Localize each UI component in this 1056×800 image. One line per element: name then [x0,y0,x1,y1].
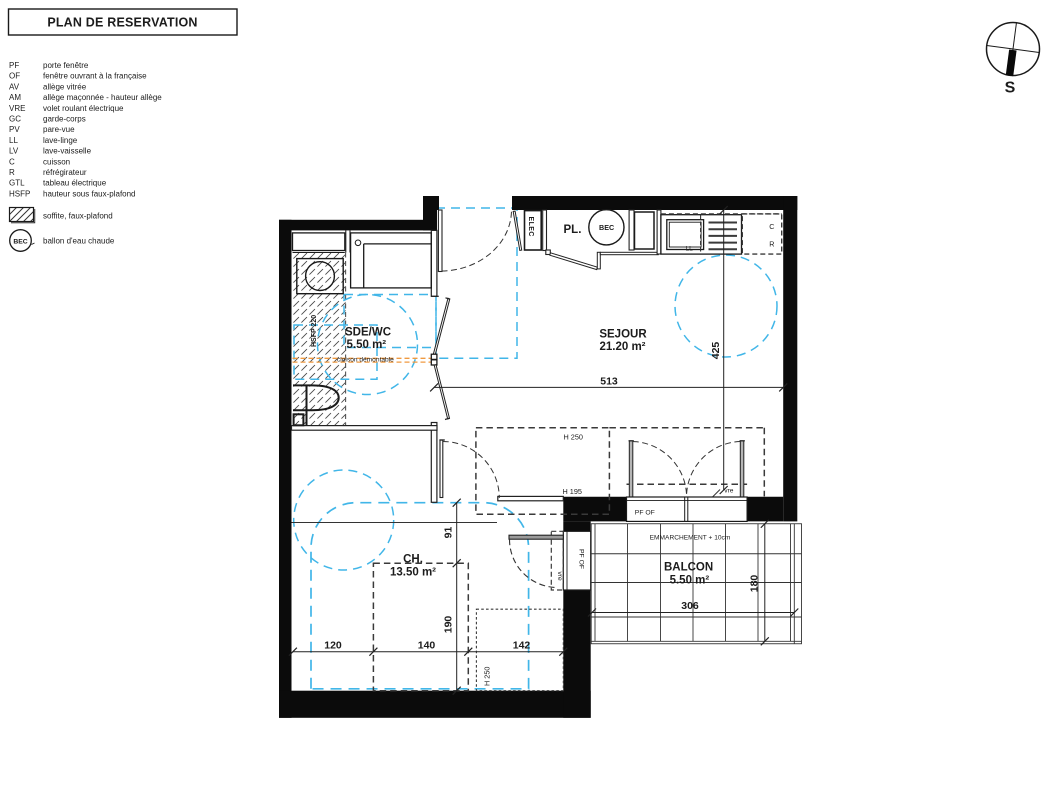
svg-text:21.20 m²: 21.20 m² [599,341,645,353]
svg-text:PF: PF [9,61,19,70]
svg-text:SEJOUR: SEJOUR [599,329,647,341]
svg-text:91: 91 [443,527,455,539]
svg-text:garde-corps: garde-corps [43,115,86,124]
svg-text:PLAN DE RESERVATION: PLAN DE RESERVATION [47,16,197,30]
svg-text:cuisson: cuisson [43,157,70,166]
svg-text:BEC: BEC [599,223,614,232]
svg-text:13.50 m²: 13.50 m² [390,566,436,578]
svg-text:AV: AV [9,82,20,91]
svg-text:soffite, faux-plafond: soffite, faux-plafond [43,212,113,221]
svg-text:LL: LL [9,136,18,145]
svg-text:hauteur sous faux-plafond: hauteur sous faux-plafond [43,189,136,198]
svg-text:BEC: BEC [13,239,27,246]
svg-text:180: 180 [749,575,761,593]
svg-text:allège maçonnée - hauteur allè: allège maçonnée - hauteur allège [43,93,162,102]
svg-text:lave-linge: lave-linge [43,136,78,145]
svg-text:GC: GC [9,115,21,124]
svg-text:425: 425 [710,342,722,360]
svg-text:190: 190 [443,616,455,634]
svg-text:lave-vaisselle: lave-vaisselle [43,147,92,156]
svg-text:513: 513 [600,375,618,387]
svg-text:VRE: VRE [9,104,25,113]
svg-text:pare-vue: pare-vue [43,125,75,134]
svg-text:H 250: H 250 [483,667,492,686]
svg-text:306: 306 [681,600,699,612]
svg-text:ballon d'eau chaude: ballon d'eau chaude [43,237,115,246]
svg-text:AM: AM [9,93,21,102]
svg-text:OF: OF [9,72,20,81]
svg-text:PL.: PL. [564,224,582,236]
svg-text:PF OF: PF OF [578,549,585,569]
svg-text:GTL: GTL [9,179,25,188]
svg-text:120: 120 [324,639,342,651]
svg-text:5.50 m²: 5.50 m² [347,339,387,351]
svg-text:PF OF: PF OF [635,510,655,517]
svg-text:142: 142 [513,639,531,651]
svg-text:EMMARCHEMENT + 10cm: EMMARCHEMENT + 10cm [650,535,731,542]
svg-text:LL: LL [686,245,694,252]
svg-text:HSFP: HSFP [9,189,30,198]
svg-text:vre: vre [556,572,563,581]
svg-text:H 250: H 250 [564,433,583,442]
svg-text:allège vitrée: allège vitrée [43,82,87,91]
svg-text:C: C [769,222,774,231]
svg-text:140: 140 [418,639,436,651]
svg-text:5.50 m²: 5.50 m² [670,574,710,586]
svg-text:HSFP 220: HSFP 220 [311,315,318,347]
svg-text:S: S [1005,80,1016,97]
svg-text:SDE/WC: SDE/WC [345,327,391,339]
svg-text:volet roulant électrique: volet roulant électrique [43,104,124,113]
svg-text:ELEC: ELEC [527,217,534,237]
svg-text:BALCON: BALCON [664,562,713,574]
svg-text:CH.: CH. [403,554,423,566]
svg-text:tableau électrique: tableau électrique [43,179,107,188]
svg-text:réfrégirateur: réfrégirateur [43,168,87,177]
svg-text:R: R [9,168,15,177]
svg-text:cloison démontable: cloison démontable [337,357,394,364]
svg-text:porte fenêtre: porte fenêtre [43,61,89,70]
svg-text:fenêtre ouvrant à la française: fenêtre ouvrant à la française [43,72,147,81]
svg-text:C: C [9,157,15,166]
svg-text:PV: PV [9,125,20,134]
svg-text:LV: LV [9,147,19,156]
svg-text:H 195: H 195 [563,487,582,496]
svg-text:R: R [769,239,774,248]
